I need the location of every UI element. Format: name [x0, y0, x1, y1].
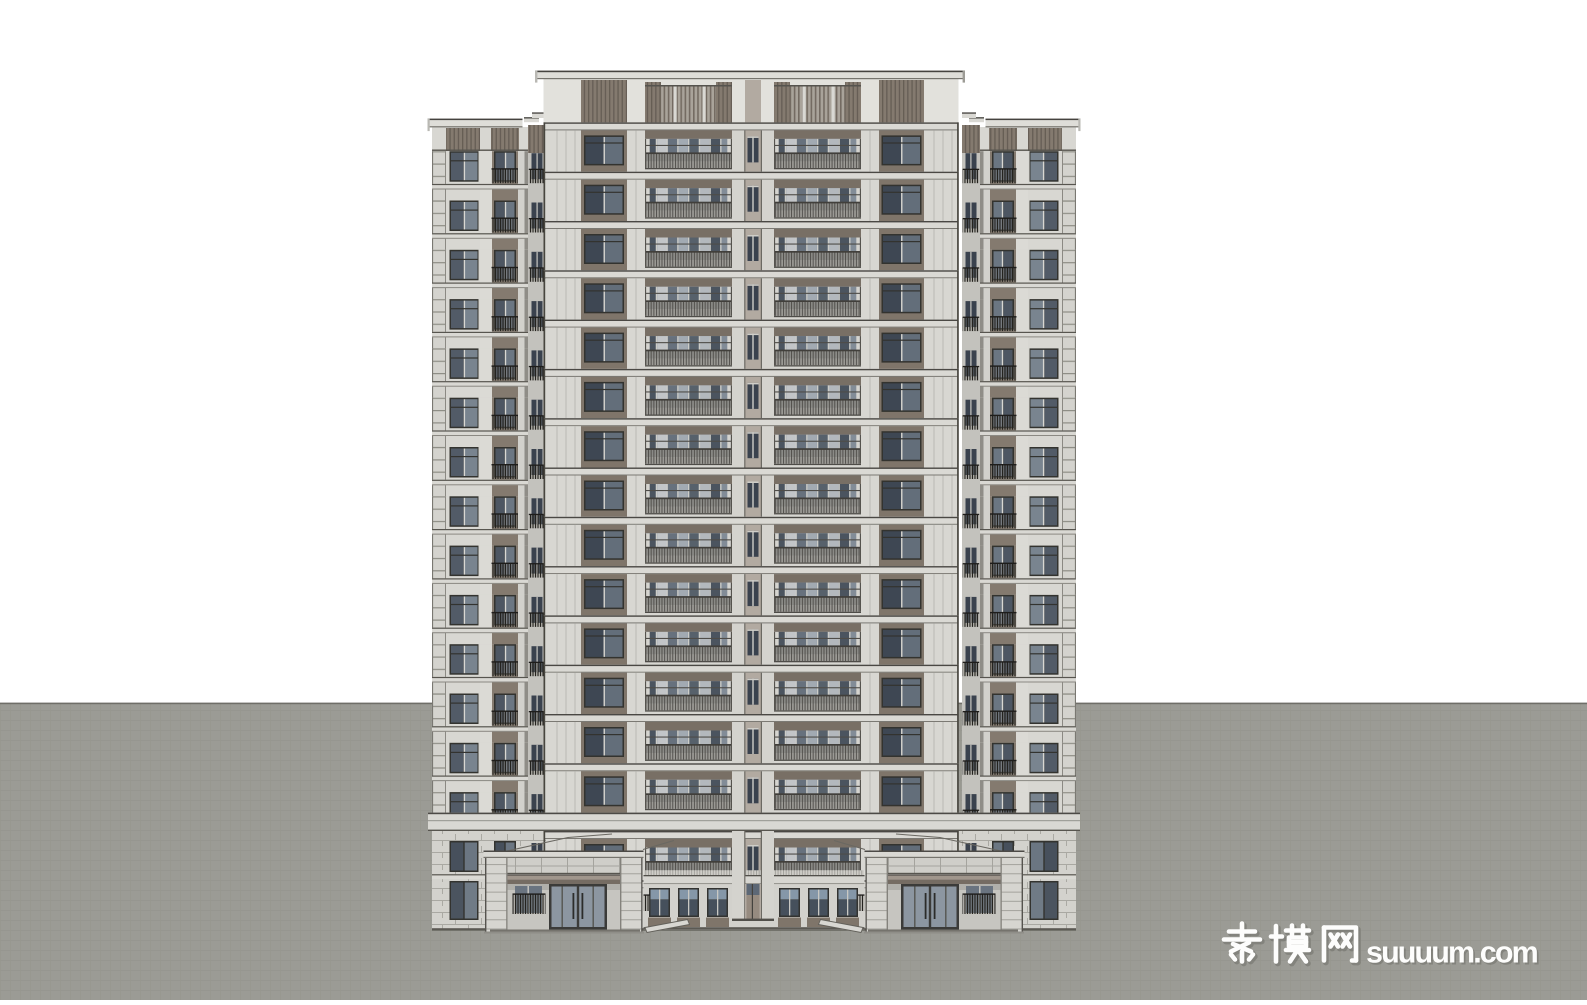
svg-text:suuuum.com: suuuum.com: [1366, 936, 1538, 970]
